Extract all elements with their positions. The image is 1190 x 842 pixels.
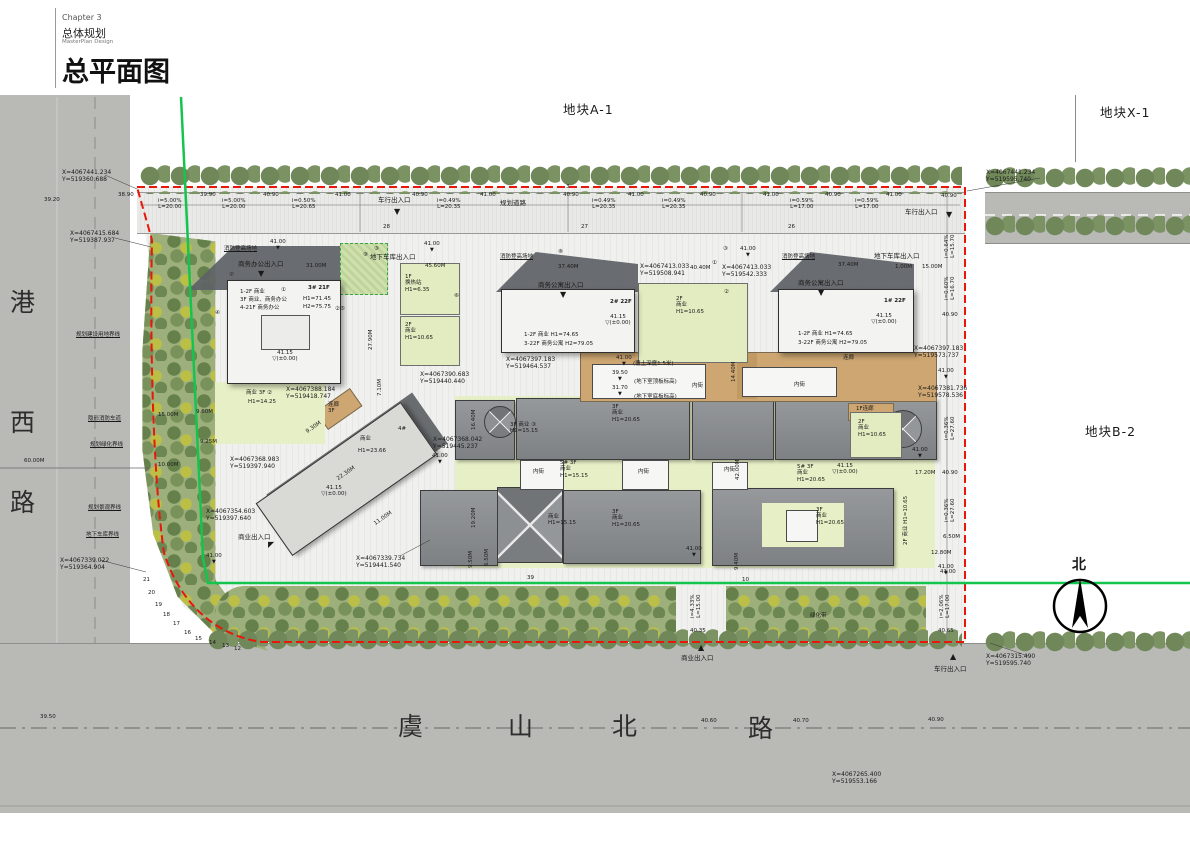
pt-16: 16 xyxy=(184,630,191,636)
elev-4090-b: 40.90 xyxy=(412,192,428,198)
elev-3990: 39.90 xyxy=(200,192,216,198)
spot-4100-5: 41.00 xyxy=(938,368,954,380)
entry-shop-sw: 商业出入口 xyxy=(238,534,271,542)
road-west-char-2: 西 xyxy=(10,408,35,438)
road-south-char-2: 山 xyxy=(508,712,533,742)
compass-label: 北 xyxy=(1072,557,1086,574)
slab-note-2: (地下室底板标高) xyxy=(634,394,677,400)
blk-3f-2065-b: 3F 商业 H1=20.65 xyxy=(612,509,640,528)
bnd-label-4: 规划景观界线 xyxy=(88,505,121,511)
entry-apt-1-arrow: ▼ xyxy=(560,291,566,299)
blk-5-3f-1515: 5# 3F 商业 H1=15.15 xyxy=(560,460,588,479)
block-2f-b: 2F 商业 H1=10.65 xyxy=(676,296,704,315)
entry-apt-2-arrow: ▼ xyxy=(818,289,824,297)
t2-level: 41.15 ▽(±0.00) xyxy=(605,314,630,327)
elev-4100-e: 41.00 xyxy=(886,192,902,198)
dim-1640m: 16.40M xyxy=(471,410,477,431)
plot-a1: 地块A-1 xyxy=(563,103,614,118)
pt-28: 28 xyxy=(383,224,390,230)
elev-4065: 40.65 xyxy=(938,628,954,634)
elev-4100-b: 41.00 xyxy=(480,192,496,198)
circ-8: ⑧ xyxy=(558,249,563,255)
green-belt-label: 绿化带 xyxy=(810,613,827,619)
spot-4100-4: 41.00 xyxy=(740,246,756,258)
pt-17: 17 xyxy=(173,621,180,627)
coord-4: X=4067413.033 Y=519508.941 xyxy=(640,263,689,277)
circ-3a: ③ xyxy=(374,246,379,252)
dim-1100m: 11.00M xyxy=(373,510,394,527)
dim-4560m: 45.60M xyxy=(425,263,446,269)
entry-vehicle-topright-arrow: ▼ xyxy=(946,211,952,219)
dim-930m: 9.30M xyxy=(305,420,323,435)
road-south-char-3: 北 xyxy=(612,712,637,742)
dim-1720m: 17.20M xyxy=(915,470,936,476)
dim-15m-w: 15.00M xyxy=(158,412,179,418)
blk-3f-2065-a: 3F 商业 H1=20.65 xyxy=(612,404,640,423)
coord-13: X=4067339.022 Y=519364.904 xyxy=(60,557,109,571)
inner-st-4: 内街 xyxy=(638,469,649,475)
entry-shop-s-arrow: ▲ xyxy=(698,644,704,652)
coord-7: X=4067390.683 Y=519440.440 xyxy=(420,371,469,385)
elev-4100-d: 41.00 xyxy=(763,192,779,198)
coord-12: X=4067339.734 Y=519441.540 xyxy=(356,555,405,569)
dim-4200m: 42.00M xyxy=(735,460,741,481)
dim-1440m: 14.40M xyxy=(731,362,737,383)
entry-apt-2: 商务公寓出入口 xyxy=(798,280,844,288)
spot-4100-8: 41.00 xyxy=(432,453,448,465)
bnd-label-5: 地下车库界线 xyxy=(86,532,119,538)
coord-1: X=4067441.234 Y=519360.688 xyxy=(62,169,111,183)
elev-4090-a: 40.90 xyxy=(263,192,279,198)
slope-5: i=0.49% L=20.35 xyxy=(592,198,616,211)
t3-line3: 4-21F 商务办公 xyxy=(240,305,279,311)
slope-s1: i=4.33% L=15.00 xyxy=(690,594,703,618)
dim-950m: 9.50M xyxy=(468,551,474,568)
coord-15: X=4067381.736 Y=519578.536 xyxy=(918,385,967,399)
coord-2: X=4067415.684 Y=519387.937 xyxy=(70,230,119,244)
dim-710m: 7.10M xyxy=(377,379,383,396)
b4-name: 商业 xyxy=(360,436,371,442)
bnd-label-3: 规划绿化界线 xyxy=(90,442,123,448)
entry-vehicle-top-arrow: ▼ xyxy=(394,208,400,216)
t2-line1: 1-2F 商业 H1=74.65 xyxy=(524,332,579,338)
pt-27: 27 xyxy=(581,224,588,230)
pt-3: 3 xyxy=(566,184,570,190)
blk-sy-1515: 商业 H1=15.15 xyxy=(548,514,576,527)
b4-num: 4# xyxy=(398,426,406,432)
elev-3890: 38.90 xyxy=(118,192,134,198)
corridor-3f: 连廊 3F xyxy=(328,402,339,415)
block-2f-c: 2F 商业 H1=10.65 xyxy=(858,419,886,438)
elev-4090-e: 40.90 xyxy=(825,192,841,198)
elev-4100-a: 41.00 xyxy=(335,192,351,198)
inner-st-1: 内街 xyxy=(692,383,703,389)
t3-level: 41.15 ▽(±0.00) xyxy=(272,350,297,363)
dim-31m: 31.00M xyxy=(306,263,327,269)
annotations-layer: 地块A-1地块X-1地块B-2港西路虞山北路北39.2038.90i=5.00%… xyxy=(0,0,1190,842)
dim-100m: 1.00M xyxy=(895,264,912,270)
fire-pad-2: 消防登高场地 xyxy=(500,254,533,260)
t1-line1: 1-2F 商业 H1=74.65 xyxy=(798,331,853,337)
road-west-char-3: 路 xyxy=(10,488,35,518)
blk-3f-1515: 3F 商业 ③ H1=15.15 xyxy=(510,422,538,435)
pt-39: 39 xyxy=(527,575,534,581)
elev-4090-c: 40.90 xyxy=(563,192,579,198)
entry-office-arrow: ▼ xyxy=(258,270,264,278)
b4-level: 41.15 ▽(±0.00) xyxy=(321,485,346,498)
t1-level: 41.15 ▽(±0.00) xyxy=(871,313,896,326)
circ-4: ④ xyxy=(215,310,220,316)
slope-6: i=0.49% L=20.35 xyxy=(662,198,686,211)
t2-num: 2# 22F xyxy=(610,299,632,305)
bnd-label-1: 规划建设用地界线 xyxy=(76,332,120,338)
blk-2f-rot: 2F 商业 H1=10.65 xyxy=(903,496,909,545)
t3-line2: 3F 商业、商务办公 xyxy=(240,297,287,303)
slope-e1: i=0.64% L=15.70 xyxy=(944,234,957,258)
slope-1: i=5.00% L=20.00 xyxy=(158,198,182,211)
circ-9: ⑨ xyxy=(363,252,368,258)
pt-26: 26 xyxy=(788,224,795,230)
bnd-label-2: 隐形消防车道 xyxy=(88,416,121,422)
elev-4070-rd: 40.70 xyxy=(793,718,809,724)
corridor-1: 连廊 xyxy=(843,355,854,361)
entry-shop-sw-arrow: ◤ xyxy=(268,541,274,549)
dim-925m: 9.25M xyxy=(200,439,217,445)
dim-940m: 9.40M xyxy=(734,553,740,570)
pt-13: 13 xyxy=(222,643,229,649)
coord-3: X=4067441.234 Y=519595.740 xyxy=(986,169,1035,183)
soil-note: (覆土深度1.5米) xyxy=(633,361,674,367)
slope-e3: i=0.36% L=27.60 xyxy=(944,416,957,440)
slab-3170: 31.70 xyxy=(612,385,628,397)
slope-e4: i=0.36% L=27.60 xyxy=(944,498,957,522)
circ-2a: ② xyxy=(724,289,729,295)
elev-4035: 40.35 xyxy=(690,628,706,634)
pt-20: 20 xyxy=(148,590,155,596)
circ-7: ⑦ xyxy=(229,272,234,278)
dim-3740m-b: 37.40M xyxy=(838,262,859,268)
t3-circ1: ① xyxy=(281,287,286,293)
coord-11: X=4067354.603 Y=519397.640 xyxy=(206,508,255,522)
dim-650m-e: 6.50M xyxy=(943,534,960,540)
t3-h2: H2=75.75 xyxy=(303,304,331,310)
slope-e2: i=0.60% L=16.70 xyxy=(944,276,957,300)
coord-17: X=4067265.400 Y=519553.166 xyxy=(832,771,881,785)
garage-entry-2: 地下车库出入口 xyxy=(874,253,920,261)
dim-4040m: 40.40M xyxy=(690,265,711,271)
dim-15m-e: 15.00M xyxy=(922,264,943,270)
dim-1280m: 12.80M xyxy=(931,550,952,556)
circ-6: ⑥ xyxy=(454,293,459,299)
block-2f-a: 2F 商业 H1=10.65 xyxy=(405,322,433,341)
fire-pad-1: 消防登高场地 xyxy=(224,246,257,252)
dim-2790m: 27.90M xyxy=(368,330,374,351)
soil-4100: 41.00 xyxy=(616,355,632,367)
entry-vehicle-topright: 车行出入口 xyxy=(905,209,938,217)
slope-s2: i=2.06% L=17.00 xyxy=(939,594,952,618)
t3-line1: 1-2F 商业 xyxy=(240,289,265,295)
corridor-1f: 1F连廊 xyxy=(856,406,874,412)
road-west-char-1: 港 xyxy=(10,288,35,318)
elev-4060-rd: 40.60 xyxy=(701,718,717,724)
spot-4100-2: 41.00 xyxy=(424,241,440,253)
elev-4090-g: 40.90 xyxy=(942,312,958,318)
pt-15: 15 xyxy=(195,636,202,642)
blk-5-3f-2065: 5# 3F 商业 H1=20.65 xyxy=(797,464,825,483)
elev-4090-f: 40.90 xyxy=(941,193,957,199)
circ-3b: ③ xyxy=(723,246,728,252)
pt-12: 12 xyxy=(234,646,241,652)
shop-3f-2: 商业 3F ② xyxy=(246,390,272,396)
dim-650m-s: 6.50M xyxy=(484,549,490,566)
dim-2230m: 22.30M xyxy=(336,465,357,482)
dim-60m: 60.00M xyxy=(24,458,45,464)
slope-3: i=0.50% L=20.65 xyxy=(292,198,316,211)
dim-10m-w: 10.00M xyxy=(158,462,179,468)
entry-vehicle-s: 车行出入口 xyxy=(934,666,967,674)
fire-pad-3: 消防登高场地 xyxy=(782,254,815,260)
elev-4100-se: 41.00 xyxy=(940,569,956,575)
coord-5: X=4067413.033 Y=519542.333 xyxy=(722,264,771,278)
coord-6: X=4067397.183 Y=519464.537 xyxy=(506,356,555,370)
t1-line2: 3-22F 商务公寓 H2=79.05 xyxy=(798,340,867,346)
elev-4090-rd: 40.90 xyxy=(928,717,944,723)
dim-1920m: 19.20M xyxy=(471,508,477,529)
slab-note-1: (地下室顶板标高) xyxy=(634,379,677,385)
entry-vehicle-top: 车行出入口 xyxy=(378,197,411,205)
dim-3740m-a: 37.40M xyxy=(558,264,579,270)
road-south-char-4: 路 xyxy=(748,714,773,744)
blk-3f-2065-c: 3F 商业 H1=20.65 xyxy=(816,507,844,526)
slope-7: i=0.59% L=17.00 xyxy=(790,198,814,211)
coord-10: X=4067368.983 Y=519397.940 xyxy=(230,456,279,470)
entry-apt-1: 商务公寓出入口 xyxy=(538,282,584,290)
elev-4090-h: 40.90 xyxy=(942,470,958,476)
elev-3920: 39.20 xyxy=(44,197,60,203)
t3-num: 3# 21F xyxy=(308,285,330,291)
slab-3950: 39.50 xyxy=(612,370,628,382)
circ-25: ②⑤ xyxy=(335,306,345,312)
elev-3950-rd: 39.50 xyxy=(40,714,56,720)
inner-st-2: 内街 xyxy=(794,382,805,388)
garage-entry-1: 地下车库出入口 xyxy=(370,254,416,262)
spot-4100-3: 41.00 xyxy=(206,553,222,565)
inner-st-3: 内街 xyxy=(533,469,544,475)
spot-4100-9: 41.00 xyxy=(686,546,702,558)
blk5-level: 41.15 ▽(±0.00) xyxy=(832,463,857,476)
road-south-char-1: 虞 xyxy=(398,712,423,742)
t1-num: 1# 22F xyxy=(884,298,906,304)
masterplan-drawing: Chapter 3 总体规划 MasterPlan Design 总平面图 xyxy=(0,0,1190,842)
pt-14: 14 xyxy=(209,640,216,646)
slope-2: i=5.00% L=20.00 xyxy=(222,198,246,211)
coord-16: X=4067315.490 Y=519595.740 xyxy=(986,653,1035,667)
entry-shop-s: 商业出入口 xyxy=(681,655,714,663)
spot-4100-6: 41.00 xyxy=(912,447,928,459)
pt-10: 10 xyxy=(742,577,749,583)
dim-960m: 9.60M xyxy=(196,409,213,415)
coord-9: X=4067368.042 Y=519445.237 xyxy=(433,436,482,450)
elev-4090-d: 40.90 xyxy=(700,192,716,198)
heat-station: 1F 换热站 H1=6.35 xyxy=(405,274,430,293)
plot-x1: 地块X-1 xyxy=(1100,106,1150,121)
circ-1a: ① xyxy=(712,260,717,266)
planned-road: 规划道路 xyxy=(500,200,526,208)
coord-14: X=4067397.183 Y=519573.737 xyxy=(914,345,963,359)
b4-h: H1=23.66 xyxy=(358,448,386,454)
shop-3f-2-h: H1=14.25 xyxy=(248,399,276,405)
entry-office: 商务办公出入口 xyxy=(238,261,284,269)
spot-4100-1: 41.00 xyxy=(270,239,286,251)
inner-st-5: 内街 xyxy=(724,467,735,473)
pt-21: 21 xyxy=(143,577,150,583)
t2-line2: 3-22F 商务公寓 H2=79.05 xyxy=(524,341,593,347)
slope-8: i=0.59% L=17.00 xyxy=(855,198,879,211)
slope-4: i=0.49% L=20.35 xyxy=(437,198,461,211)
plot-b2: 地块B-2 xyxy=(1085,425,1136,440)
coord-8: X=4067388.184 Y=519418.747 xyxy=(286,386,335,400)
entry-vehicle-s-arrow: ▲ xyxy=(950,653,956,661)
elev-4100-c: 41.00 xyxy=(628,192,644,198)
pt-19: 19 xyxy=(155,602,162,608)
pt-18: 18 xyxy=(163,612,170,618)
t3-h1: H1=71.45 xyxy=(303,296,331,302)
